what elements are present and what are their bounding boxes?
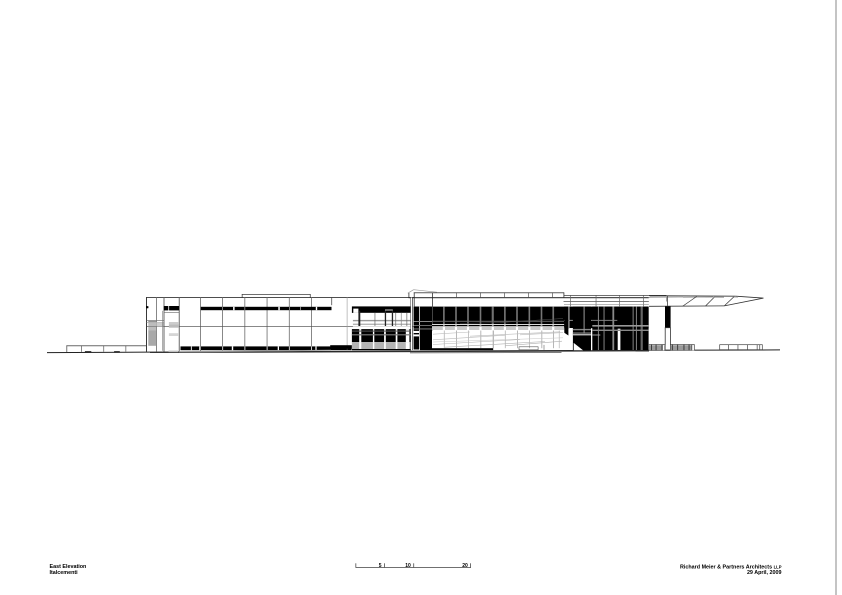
svg-text:20: 20 — [462, 563, 468, 569]
svg-text:Italcementi: Italcementi — [50, 570, 79, 576]
svg-text:5: 5 — [379, 563, 382, 569]
svg-text:29 April, 2009: 29 April, 2009 — [747, 570, 782, 576]
svg-text:10: 10 — [405, 563, 411, 569]
